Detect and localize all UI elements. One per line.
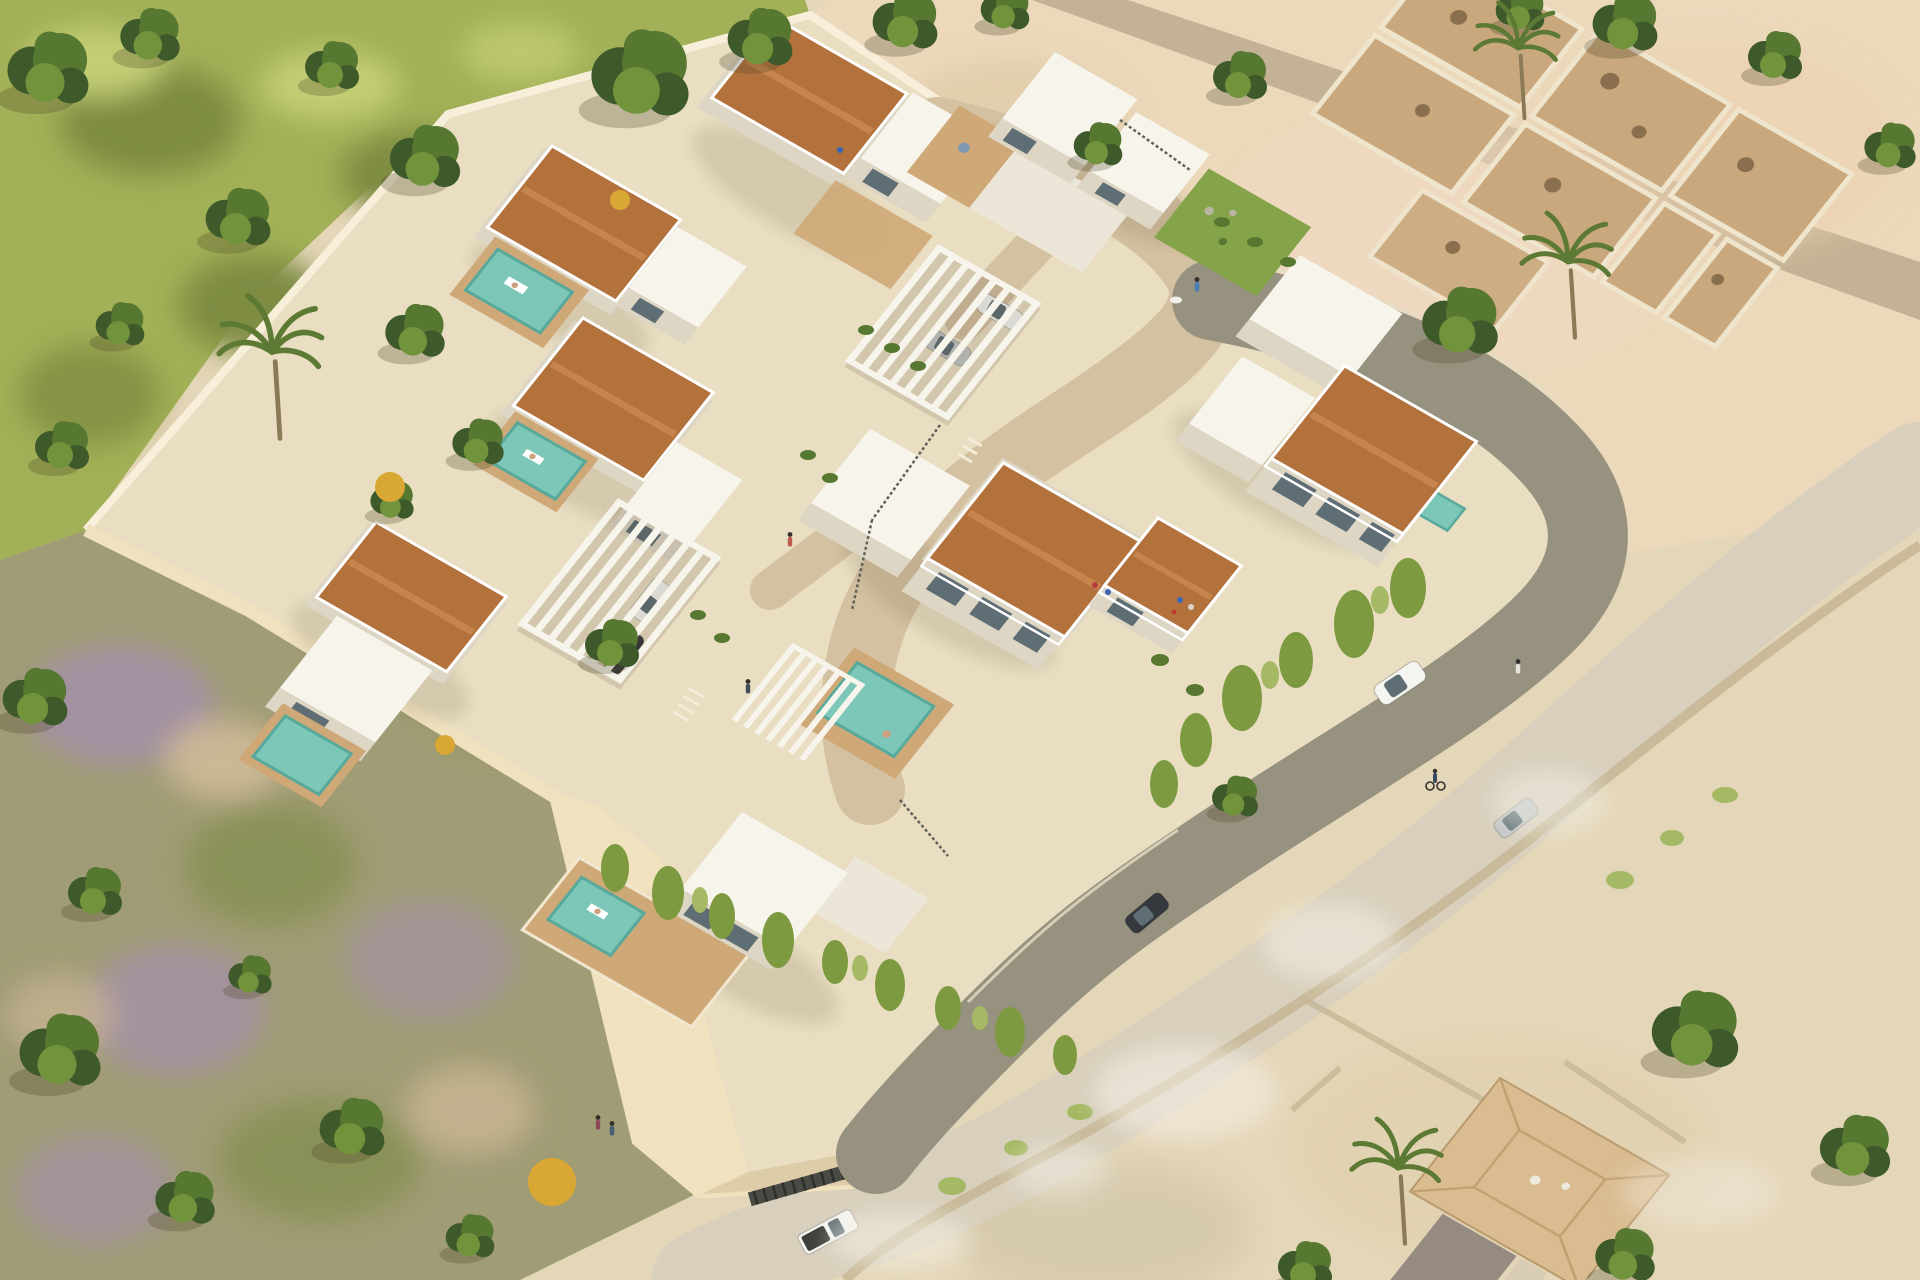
pedestrian [788, 532, 793, 546]
pedestrian [1516, 659, 1521, 673]
render-viewport: gated villa community [0, 0, 1920, 1280]
pedestrian [746, 679, 751, 693]
pedestrian [596, 1115, 601, 1129]
site-aerial-render: gated villa community [0, 0, 1920, 1280]
pedestrian [610, 1121, 615, 1135]
dog [1170, 297, 1182, 304]
dog-walker [1195, 277, 1200, 291]
